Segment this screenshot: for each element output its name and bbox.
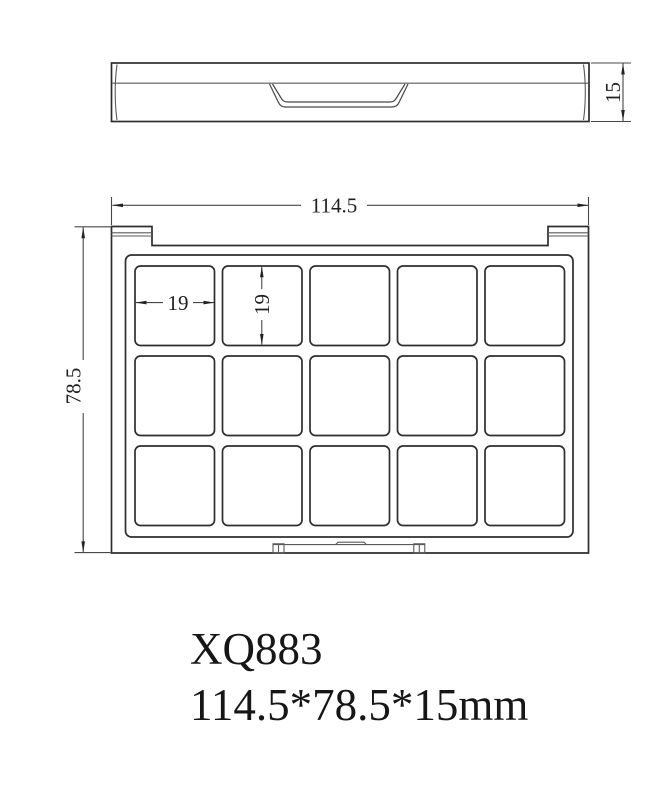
pan-well-grid — [135, 266, 565, 526]
well-height-dimension: 19 — [250, 266, 274, 345]
pan-well — [398, 266, 478, 346]
arrowhead-down — [81, 541, 85, 552]
arrowhead-up — [260, 266, 264, 277]
arrowhead-up — [81, 227, 85, 238]
side-view — [112, 63, 590, 122]
pan-well — [398, 446, 478, 526]
pan-well — [310, 446, 390, 526]
pan-well — [223, 356, 303, 436]
caption: XQ883 114.5*78.5*15mm — [190, 624, 528, 730]
thickness-label: 15 — [601, 82, 625, 103]
technical-drawing: 15 — [0, 0, 668, 795]
tray-outline — [126, 255, 574, 537]
overall-height-dimension: 78.5 — [61, 227, 110, 553]
thickness-dimension: 15 — [591, 63, 631, 122]
well-width-dimension: 19 — [136, 291, 215, 315]
arrowhead-right — [578, 204, 589, 208]
arrowhead-right — [204, 301, 215, 305]
arrowhead-down — [260, 334, 264, 345]
overall-height-label: 78.5 — [61, 368, 85, 405]
size-caption: 114.5*78.5*15mm — [190, 680, 528, 730]
bottom-latch — [273, 542, 425, 553]
pan-well — [310, 266, 390, 346]
pan-well — [310, 356, 390, 436]
overall-width-dimension: 114.5 — [112, 194, 589, 226]
front-view — [112, 227, 589, 554]
thumb-notch-outer — [270, 84, 409, 107]
thumb-notch-inner — [273, 84, 406, 102]
side-view-right-edge-line — [584, 65, 586, 121]
pan-well — [485, 266, 565, 346]
case-outline — [112, 227, 589, 554]
arrowhead-down — [621, 110, 625, 121]
model-number: XQ883 — [190, 624, 323, 674]
pan-well — [135, 356, 215, 436]
drawing-sheet: 15 — [0, 0, 668, 795]
arrowhead-left — [136, 301, 147, 305]
pan-well — [485, 446, 565, 526]
pan-well — [223, 446, 303, 526]
overall-width-label: 114.5 — [311, 194, 357, 218]
pan-well — [135, 446, 215, 526]
arrowhead-up — [621, 64, 625, 75]
pan-well — [485, 356, 565, 436]
pan-well — [398, 356, 478, 436]
well-width-label: 19 — [168, 291, 189, 315]
side-view-left-edge-line — [115, 65, 117, 121]
arrowhead-left — [112, 204, 123, 208]
well-height-label: 19 — [250, 294, 274, 315]
side-view-body — [112, 63, 590, 122]
